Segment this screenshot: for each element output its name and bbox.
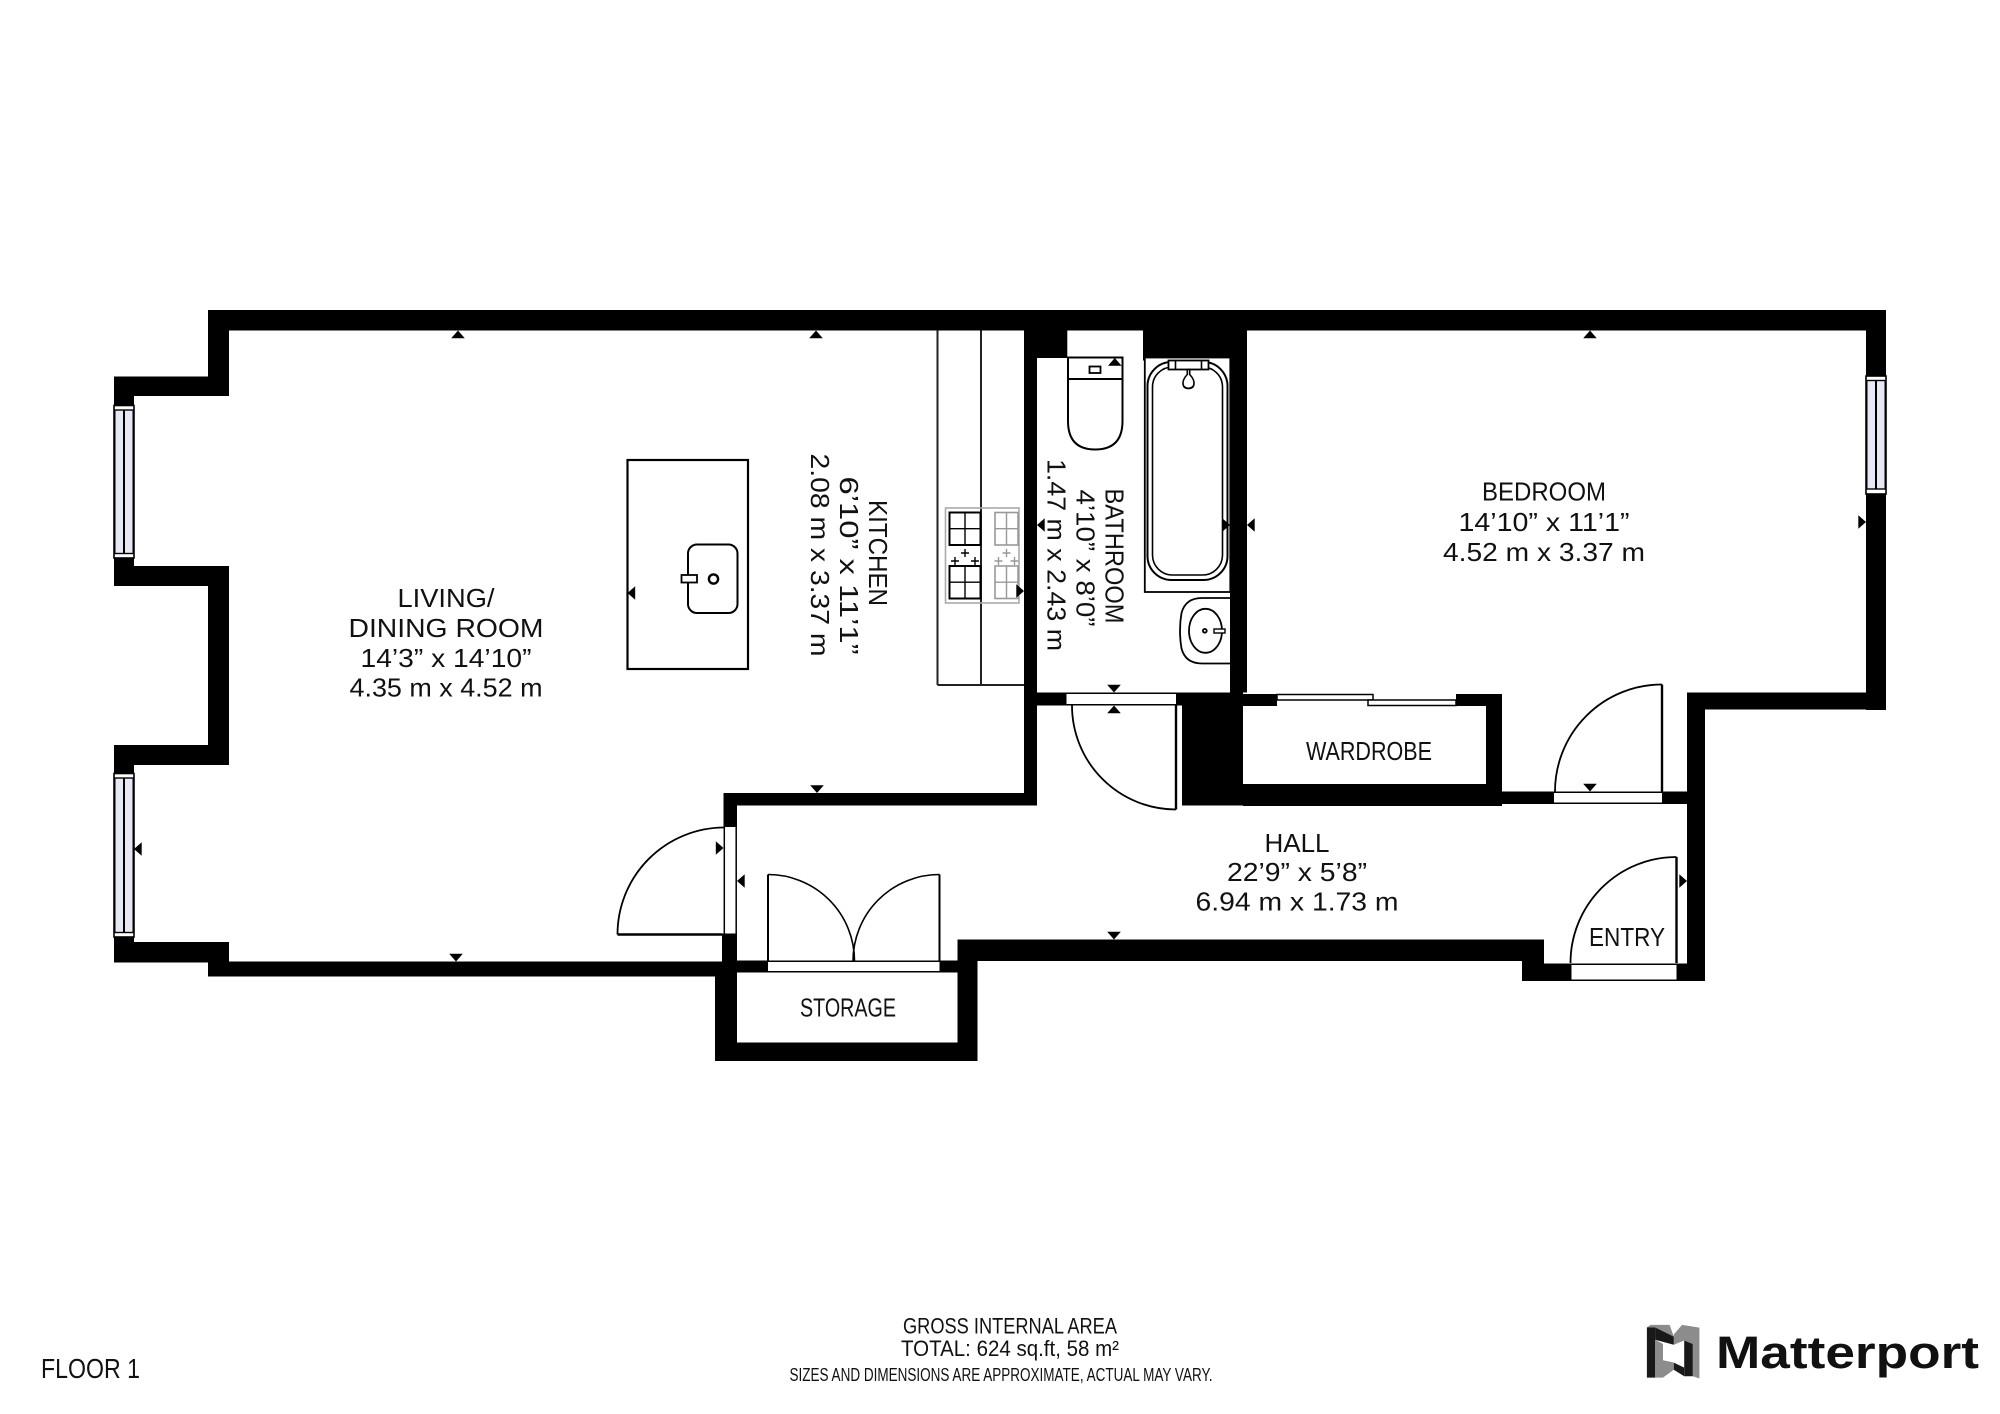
svg-text:ENTRY: ENTRY bbox=[1589, 922, 1665, 952]
svg-text:GROSS INTERNAL AREA: GROSS INTERNAL AREA bbox=[903, 1314, 1117, 1339]
svg-text:Matterport: Matterport bbox=[1716, 1327, 1979, 1378]
svg-text:1.47 m x 2.43 m: 1.47 m x 2.43 m bbox=[1042, 459, 1072, 651]
svg-text:4’10” x 8’0”: 4’10” x 8’0” bbox=[1071, 490, 1101, 627]
svg-text:6.94 m x 1.73 m: 6.94 m x 1.73 m bbox=[1196, 887, 1399, 917]
svg-text:22’9” x 5’8”: 22’9” x 5’8” bbox=[1227, 857, 1367, 887]
svg-text:WARDROBE: WARDROBE bbox=[1306, 736, 1432, 766]
svg-text:14’10” x 11’1”: 14’10” x 11’1” bbox=[1459, 507, 1630, 537]
svg-text:4.35 m x 4.52 m: 4.35 m x 4.52 m bbox=[350, 673, 543, 703]
svg-text:BATHROOM: BATHROOM bbox=[1100, 489, 1130, 624]
svg-text:4.52 m x 3.37 m: 4.52 m x 3.37 m bbox=[1443, 537, 1645, 567]
svg-text:BEDROOM: BEDROOM bbox=[1482, 477, 1606, 507]
svg-text:6’10” x 11’1”: 6’10” x 11’1” bbox=[834, 477, 864, 655]
svg-text:FLOOR 1: FLOOR 1 bbox=[41, 1353, 140, 1384]
svg-text:LIVING/: LIVING/ bbox=[398, 583, 496, 613]
svg-text:TOTAL: 624 sq.ft, 58 m²: TOTAL: 624 sq.ft, 58 m² bbox=[901, 1336, 1119, 1361]
svg-text:14’3” x 14’10”: 14’3” x 14’10” bbox=[361, 643, 532, 673]
svg-text:DINING ROOM: DINING ROOM bbox=[349, 613, 544, 643]
svg-text:HALL: HALL bbox=[1264, 828, 1329, 858]
svg-text:2.08 m x 3.37 m: 2.08 m x 3.37 m bbox=[805, 454, 835, 657]
svg-text:SIZES AND DIMENSIONS ARE APPRO: SIZES AND DIMENSIONS ARE APPROXIMATE, AC… bbox=[790, 1364, 1213, 1385]
svg-text:KITCHEN: KITCHEN bbox=[863, 500, 893, 606]
svg-text:STORAGE: STORAGE bbox=[800, 993, 896, 1023]
